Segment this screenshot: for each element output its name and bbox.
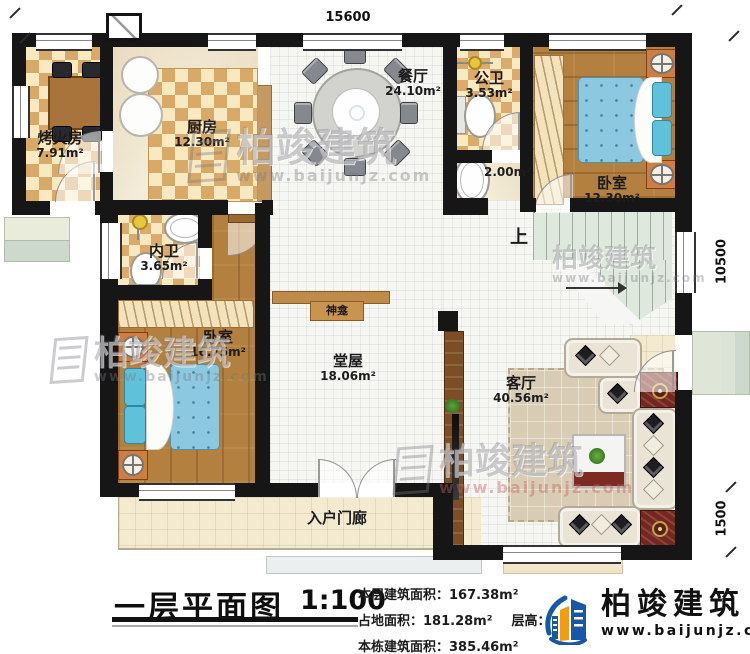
dim-tick	[9, 7, 20, 18]
plant-icon	[445, 399, 460, 413]
bed-sw-pillow	[124, 368, 146, 406]
pillar-hall-living	[438, 311, 458, 331]
room-name: 厨房	[162, 119, 242, 136]
wall-innerbath-bottom	[113, 285, 203, 300]
room-name: 烤火房	[20, 130, 100, 147]
brand-name: 柏竣建筑	[601, 590, 750, 620]
room-label-wash-alcove: 2.00m²	[484, 166, 528, 180]
dim-tick	[728, 30, 739, 41]
chimney-box	[106, 13, 142, 41]
room-label-bedroom-sw: 卧室 16.75m²	[178, 329, 258, 360]
room-area: 24.10m²	[373, 85, 453, 99]
title-underline-thick	[112, 617, 358, 622]
nightstand-lamp-icon	[650, 53, 674, 74]
window-dining-top	[303, 33, 402, 51]
dim-right-10500: 10500	[715, 237, 730, 287]
info-value: 167.38m²	[449, 588, 518, 603]
coffee-table-plant-icon	[589, 448, 605, 464]
porch-label: 入户门廊	[277, 510, 397, 527]
room-area: 16.75m²	[178, 346, 258, 360]
room-area: 40.56m²	[481, 392, 561, 406]
room-label-dining: 餐厅 24.10m²	[373, 68, 453, 99]
room-name: 内卫	[124, 243, 204, 260]
fire-room-table	[48, 76, 108, 130]
tv-panel	[452, 414, 459, 500]
wall-fireroom-bottom-a	[12, 201, 50, 215]
wall-alcove-bottom-stub	[443, 198, 488, 215]
info-value: 385.46m²	[449, 640, 518, 654]
dining-table-center	[349, 105, 365, 121]
bed-ne-pillow	[652, 82, 672, 118]
dim-right-1500: 1500	[715, 497, 730, 541]
up-text: 上	[510, 227, 528, 248]
corner-table-bottom	[640, 510, 678, 546]
info-label: 占地面积：	[358, 614, 423, 629]
kitchen-counter-band	[256, 85, 272, 202]
wall-bedroom-ne-bottom-a	[520, 198, 536, 212]
room-label-living-room: 客厅 40.56m²	[481, 375, 561, 406]
wall-fire-kitchen-a	[100, 47, 113, 131]
nightstand	[118, 332, 148, 362]
room-label-main-hall: 堂屋 18.06m²	[308, 353, 388, 384]
room-area: 3.53m²	[457, 87, 521, 101]
dining-chair	[344, 158, 366, 176]
window-living-bottom	[503, 545, 621, 564]
window-publicbath-top	[460, 33, 504, 51]
room-name: 堂屋	[308, 353, 388, 370]
altar-label: 神龛	[326, 304, 348, 317]
room-label-kitchen: 厨房 12.30m²	[162, 119, 242, 150]
room-area: 2.00m²	[484, 166, 528, 180]
nightstand-lamp-icon	[650, 164, 674, 185]
window-innerbath-left	[100, 223, 122, 279]
wall-innerbath-right-b	[198, 279, 212, 300]
dining-chair	[294, 102, 312, 124]
room-area: 18.06m²	[308, 370, 388, 384]
room-name: 卧室	[572, 175, 652, 192]
nightstand	[646, 49, 678, 78]
window-fire-room-top	[36, 33, 92, 51]
room-name: 餐厅	[373, 68, 453, 85]
title-underline-thin	[112, 625, 358, 627]
brand-logo-icon	[543, 583, 593, 645]
alcove-washbasin	[454, 156, 490, 204]
wall-living-bottom-a	[433, 545, 503, 560]
kitchen-sink	[121, 56, 159, 94]
info-value: 181.28m²	[423, 614, 492, 629]
wall-bedroom-ne-left	[520, 47, 533, 210]
stairs-up-label: 上	[506, 228, 532, 249]
nightstand-lamp-icon	[122, 454, 144, 476]
room-area: 7.91m²	[20, 147, 100, 161]
window-bedroom-ne-top	[549, 33, 646, 51]
stairs-arrow-head-icon	[618, 282, 627, 294]
altar-box: 神龛	[310, 301, 364, 321]
left-outdoor-step-upper	[4, 217, 70, 242]
info-label: 本层建筑面积：	[358, 588, 449, 603]
room-label-bedroom-ne: 卧室 12.30m²	[572, 175, 652, 206]
dim-tick	[725, 481, 736, 492]
shower-stem	[137, 228, 139, 240]
dining-chair	[400, 102, 418, 124]
nightstand-lamp-icon	[122, 336, 144, 358]
nightstand	[118, 450, 148, 480]
wall-right-lower	[675, 390, 692, 560]
wall-hall-bottom-right	[395, 483, 453, 497]
info-label: 本栋建筑面积：	[358, 640, 449, 654]
porch-text: 入户门廊	[307, 509, 367, 527]
window-bedroom-sw-bottom	[139, 483, 235, 501]
shower-head-icon	[132, 214, 148, 230]
staircase-upper-flight	[533, 212, 672, 260]
towel-bar-knob	[468, 56, 482, 70]
kitchen-sink	[119, 93, 163, 137]
room-area: 12.30m²	[572, 192, 652, 206]
room-area: 3.65m²	[124, 260, 204, 274]
bed-ne-pillow	[652, 120, 672, 156]
window-stairs-right	[675, 232, 696, 293]
floor-plan-canvas: 神龛 烤火房 7.91m² 厨房 12.30m² 餐厅 24.10m² 公卫 3…	[0, 0, 750, 654]
wall-right-upper	[675, 33, 692, 232]
dim-top-15600: 15600	[318, 10, 378, 25]
left-outdoor-step-lower	[4, 240, 70, 262]
dim-tick	[671, 4, 682, 15]
room-name: 公卫	[457, 70, 521, 87]
room-area: 12.30m²	[162, 136, 242, 150]
dim-tick	[725, 546, 736, 557]
table-medallion-icon	[652, 521, 668, 537]
watermark-logo-icon	[49, 336, 88, 384]
brand-logo: 柏竣建筑 www.baijunjz.com	[543, 581, 748, 647]
wardrobe-bedroom-sw	[118, 300, 254, 328]
door-leaf-living-side	[672, 350, 674, 391]
entry-door-leaf-left	[318, 459, 320, 497]
bed-sw-mattress	[170, 364, 220, 450]
brand-url: www.baijunjz.com	[601, 624, 750, 638]
wall-publicbath-bottom	[443, 150, 492, 163]
room-label-public-bath: 公卫 3.53m²	[457, 70, 521, 101]
fire-room-chair	[52, 62, 72, 78]
side-outdoor-steps	[692, 331, 750, 395]
room-name: 客厅	[481, 375, 561, 392]
fire-room-chair	[82, 62, 102, 78]
wall-fire-kitchen-b	[100, 172, 113, 203]
wall-right-mid	[675, 293, 692, 335]
room-label-inner-bath: 内卫 3.65m²	[124, 243, 204, 274]
stairs-direction-arrow	[566, 287, 620, 289]
room-label-fire-room: 烤火房 7.91m²	[20, 130, 100, 161]
wall-fireroom-bottom-b	[95, 201, 113, 215]
window-kitchen-top	[208, 33, 256, 51]
room-name: 卧室	[178, 329, 258, 346]
bed-sw-pillow	[124, 406, 146, 444]
